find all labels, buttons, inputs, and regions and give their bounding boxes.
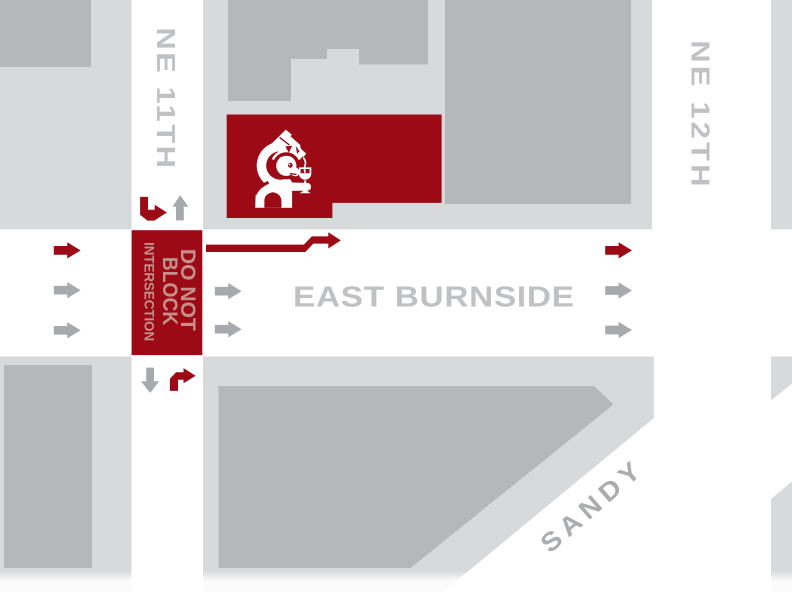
svg-text:EAST BURNSIDE: EAST BURNSIDE [293,280,574,312]
svg-text:NE 11TH: NE 11TH [151,28,180,168]
svg-text:NE 12TH: NE 12TH [685,40,714,186]
svg-text:INTERSECTION: INTERSECTION [142,242,158,341]
svg-text:BLOCK: BLOCK [158,257,181,325]
